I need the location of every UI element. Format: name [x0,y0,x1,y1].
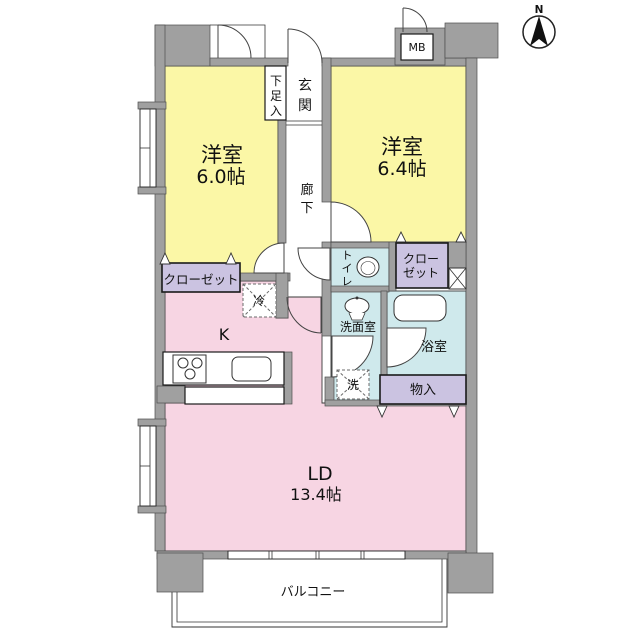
fridge-label: 冷 [253,294,265,308]
toilet-door-swing [298,248,330,280]
storage-label: 物入 [410,383,436,398]
porch-door-arc [218,25,251,58]
bathroom-label: 浴室 [421,339,447,355]
closet-left-label: クローゼット [163,272,238,287]
living-name-label: LD [307,463,332,485]
wall-segment [157,553,203,592]
compass: N [523,4,555,48]
bedroom1-name-label: 洋室 [201,143,243,167]
toilet-label: トイレ [342,249,353,288]
wall-segment [448,242,466,268]
north-label: N [535,4,544,16]
washroom-label: 洗面室 [340,319,376,334]
stove-burner [178,358,188,368]
bedroom1-size-label: 6.0帖 [196,166,245,188]
wall-segment [381,291,387,375]
window-jamb [138,102,166,109]
toilet-bowl [357,257,379,277]
washbasin-pedestal [349,313,365,320]
wall-segment [210,58,288,66]
wall-segment [389,242,396,291]
window-jamb [138,419,166,426]
wall-segment [448,553,493,593]
wall-segment [445,23,498,58]
bathtub [394,295,446,321]
closet-right-label-line1: クロー [403,252,439,266]
wall-segment [325,377,334,403]
wall-segment [322,58,331,202]
kitchen-counter-lower [185,387,284,404]
living-size-label: 13.4帖 [290,485,342,504]
floorplan-canvas: N 洋室 6.0帖 洋室 6.4帖 LD 13.4帖 K 玄関 下足入 廊下 ト… [0,0,640,640]
kitchen-label: K [219,325,230,344]
shoe-cupboard-label: 下足入 [270,74,282,118]
window-jamb [138,506,166,513]
meter-box-label: MB [408,41,425,54]
wall-segment [331,286,389,292]
stove-burner [185,369,195,379]
wall-segment [157,386,185,403]
kitchen-sink [232,357,271,381]
washbasin-faucet [356,297,359,300]
floorplan-drawing: N 洋室 6.0帖 洋室 6.4帖 LD 13.4帖 K 玄関 下足入 廊下 ト… [0,0,640,640]
bedroom2-name-label: 洋室 [381,135,423,159]
window-jamb [138,187,166,194]
bedroom2-size-label: 6.4帖 [377,158,426,180]
entrance-label: 玄関 [298,77,312,114]
entrance-door-arc [288,29,322,63]
washbasin [345,298,369,314]
wall-segment [276,273,288,318]
closet-right-label-line2: ゼット [403,266,439,280]
wall-segment [278,120,286,243]
balcony-label: バルコニー [281,585,346,600]
hallway-label: 廊下 [300,182,313,216]
stove-burner [192,358,202,368]
washer-label: 洗 [347,378,359,392]
window-balcony-sliding-door [228,551,405,559]
wall-segment [466,58,477,557]
